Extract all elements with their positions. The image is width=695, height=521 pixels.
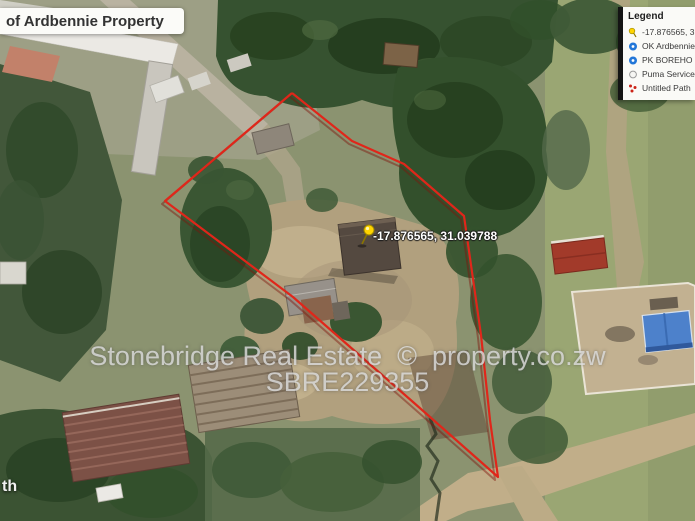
legend-item-label: Untitled Path bbox=[642, 83, 691, 93]
legend-item-coordinates: -17.876565, 3 bbox=[628, 25, 695, 39]
satellite-imagery bbox=[0, 0, 695, 521]
pin-coordinates-label: -17.876565, 31.039788 bbox=[373, 229, 497, 243]
legend-item-label: -17.876565, 3 bbox=[642, 27, 694, 37]
map-canvas[interactable]: -17.876565, 31.039788 Stonebridge Real E… bbox=[0, 0, 695, 521]
blue-roof-building bbox=[642, 311, 693, 353]
legend-item-label: OK Ardbennie bbox=[642, 41, 695, 51]
legend-title: Legend bbox=[628, 11, 695, 22]
legend-item-ok-ardbennie: OK Ardbennie bbox=[628, 39, 695, 53]
legend-item-untitled-path: Untitled Path bbox=[628, 81, 695, 95]
legend-item-puma-service: Puma Service bbox=[628, 67, 695, 81]
legend-item-pk-borehole: PK BOREHO bbox=[628, 53, 695, 67]
pushpin-icon bbox=[628, 27, 638, 38]
street-label-partial: th bbox=[2, 478, 17, 496]
legend-item-label: Puma Service bbox=[642, 69, 695, 79]
placemark-icon bbox=[628, 41, 638, 52]
tan-building bbox=[383, 43, 419, 68]
legend-item-label: PK BOREHO bbox=[642, 55, 693, 65]
placemark-icon bbox=[628, 55, 638, 66]
red-roof-building bbox=[551, 235, 608, 274]
path-icon bbox=[628, 83, 638, 94]
legend-panel: Legend -17.876565, 3 OK Ardbennie PK BOR… bbox=[618, 7, 695, 100]
circle-outline-icon bbox=[628, 69, 638, 80]
map-title: of Ardbennie Property bbox=[6, 13, 164, 30]
map-title-box: of Ardbennie Property bbox=[0, 8, 184, 34]
